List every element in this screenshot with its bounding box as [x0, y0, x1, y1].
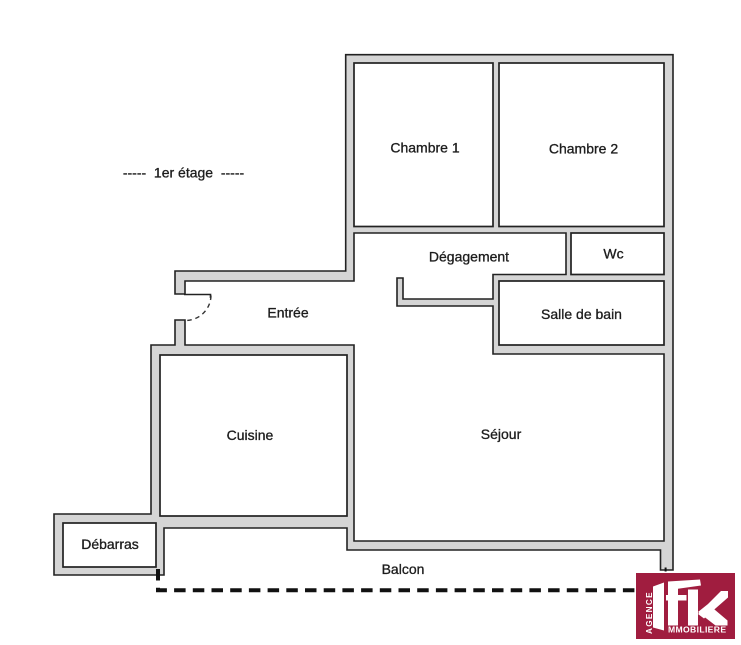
svg-text:Dégagement: Dégagement [429, 249, 509, 265]
svg-text:Salle de bain: Salle de bain [541, 306, 622, 322]
svg-text:Chambre 1: Chambre 1 [390, 140, 459, 156]
svg-text:Cuisine: Cuisine [227, 427, 274, 443]
svg-text:Balcon: Balcon [382, 561, 425, 577]
svg-text:Séjour: Séjour [481, 426, 522, 442]
svg-text:----- 1er étage -----: ----- 1er étage ----- [123, 165, 245, 181]
svg-text:AGENCE: AGENCE [645, 591, 654, 634]
svg-text:Chambre 2: Chambre 2 [549, 141, 618, 157]
svg-text:Entrée: Entrée [267, 305, 308, 321]
svg-text:Débarras: Débarras [81, 536, 139, 552]
svg-text:Wc: Wc [603, 246, 623, 262]
svg-text:MMOBILIERE: MMOBILIERE [668, 625, 726, 635]
